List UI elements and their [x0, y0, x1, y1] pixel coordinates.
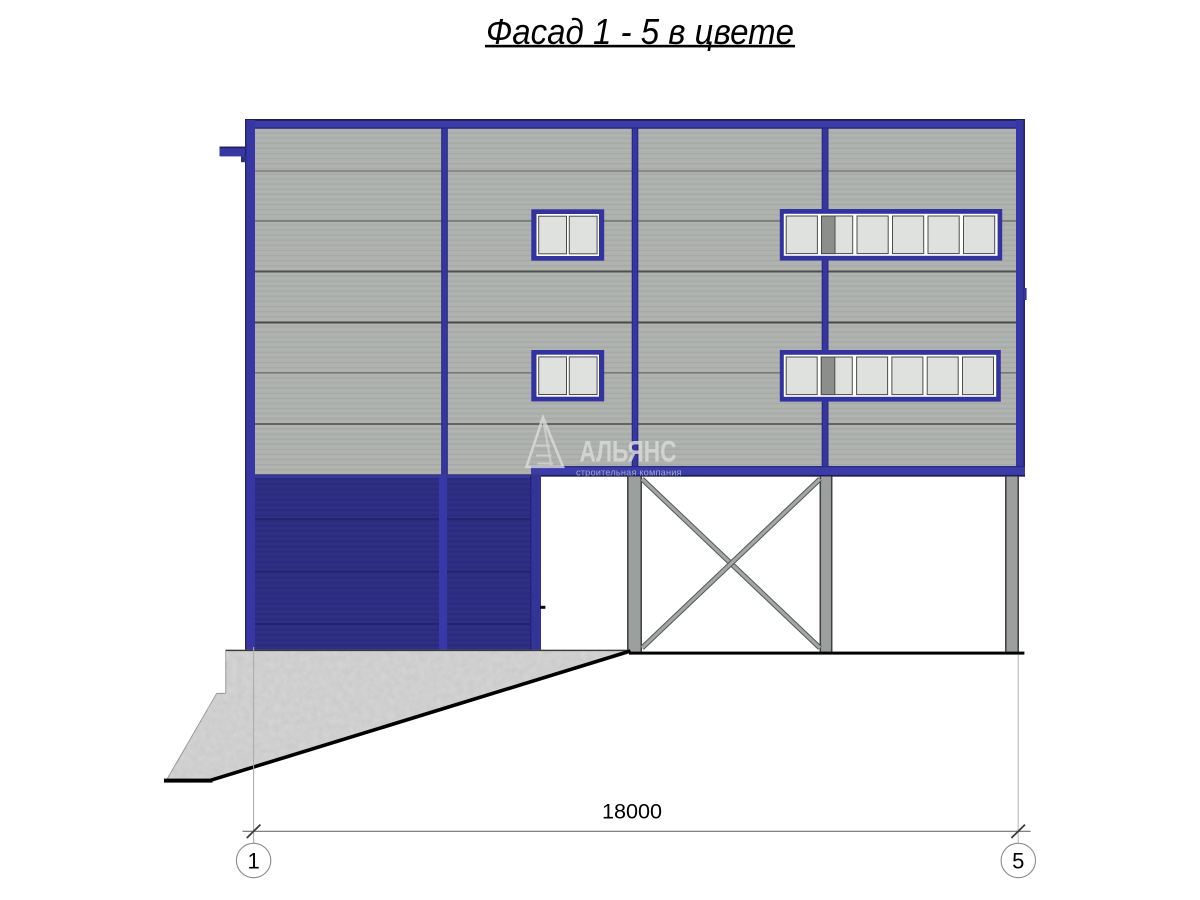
svg-text:18000: 18000 [602, 799, 662, 824]
svg-text:5: 5 [1012, 848, 1024, 873]
svg-text:строительная компания: строительная компания [576, 468, 682, 478]
svg-text:АЛЬЯНС: АЛЬЯНС [580, 436, 677, 469]
svg-text:1: 1 [247, 848, 259, 873]
